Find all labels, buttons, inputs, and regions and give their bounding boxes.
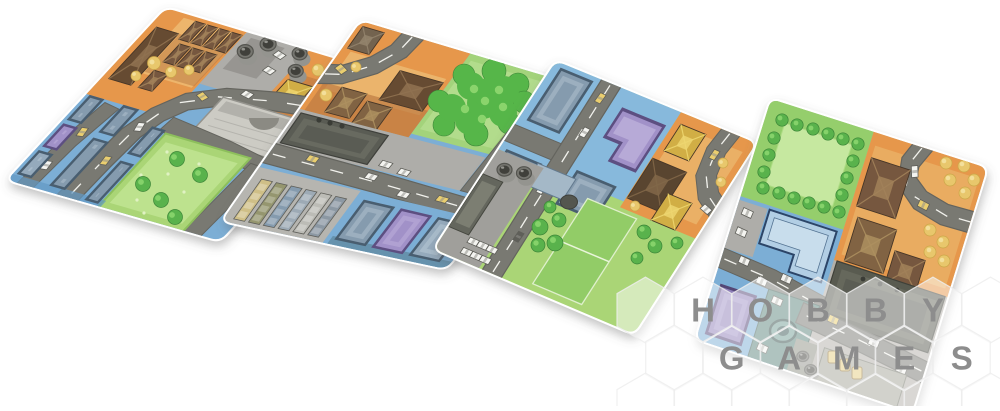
svg-text:Y: Y	[922, 292, 944, 329]
svg-text:M: M	[833, 340, 861, 377]
svg-text:E: E	[893, 340, 915, 377]
svg-text:O: O	[748, 292, 774, 329]
svg-text:B: B	[864, 292, 888, 329]
svg-text:H: H	[691, 292, 715, 329]
svg-text:S: S	[951, 340, 973, 377]
svg-text:A: A	[777, 340, 801, 377]
svg-text:G: G	[719, 340, 745, 377]
svg-text:B: B	[806, 292, 830, 329]
